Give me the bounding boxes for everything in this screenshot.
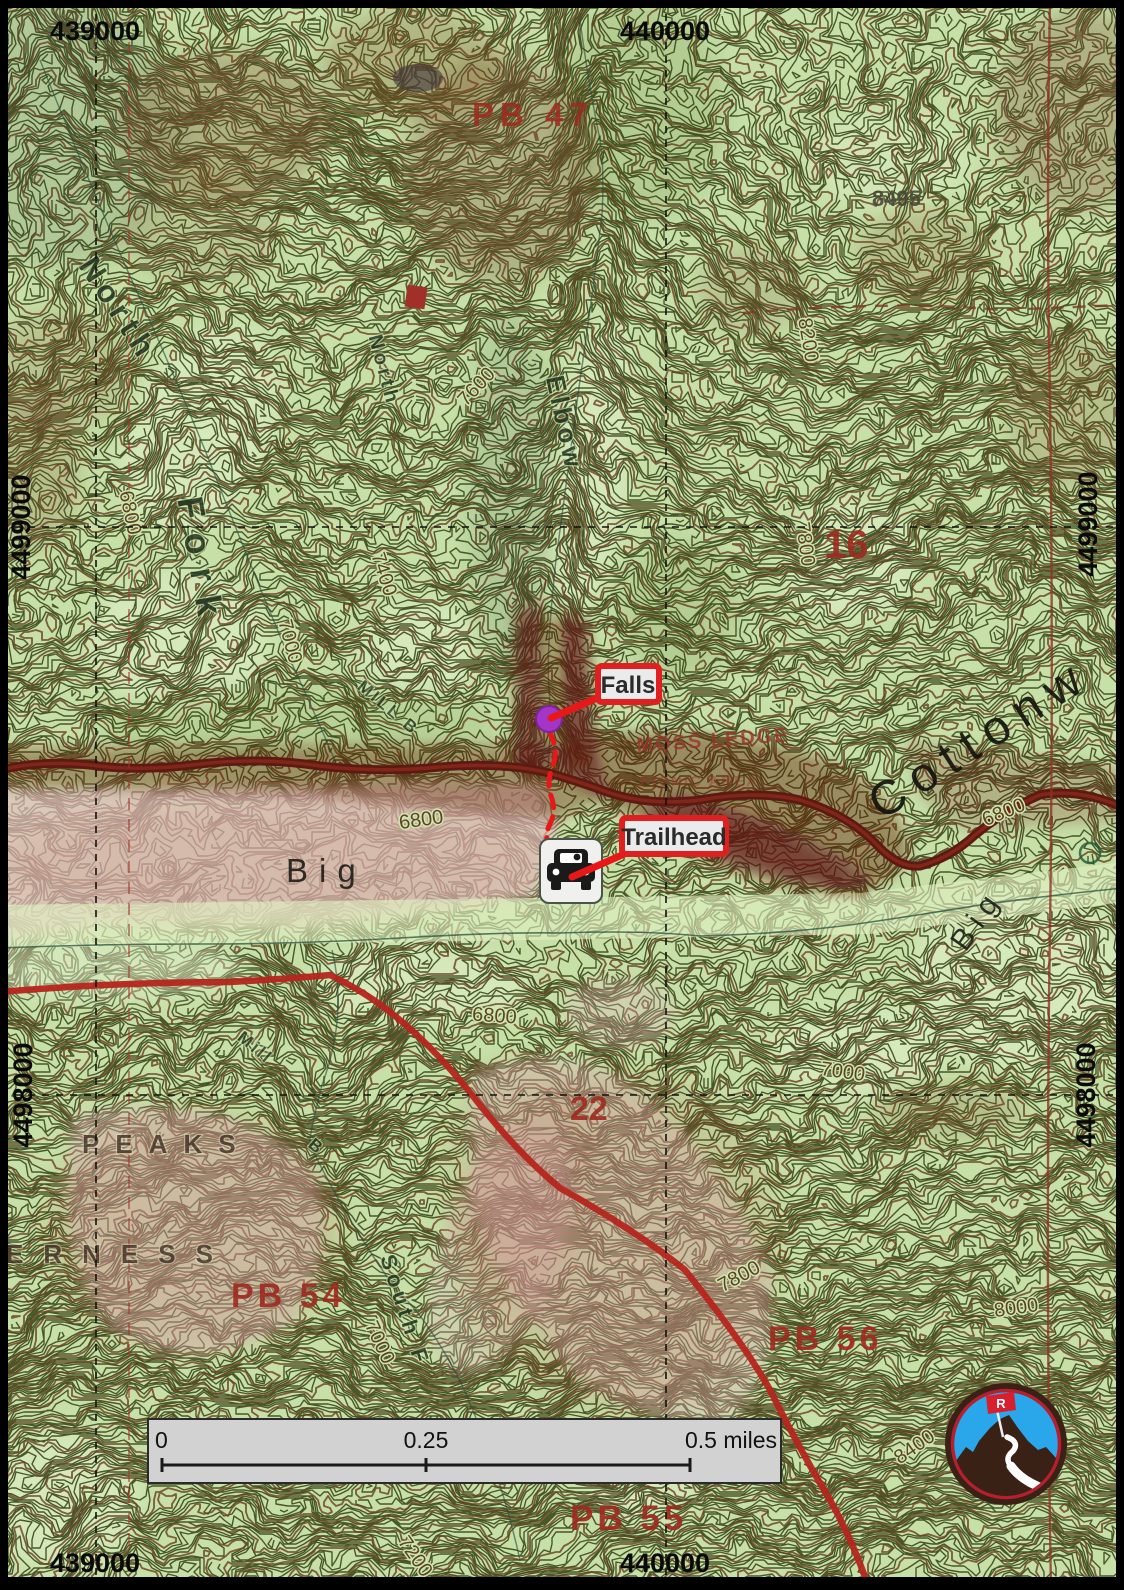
svg-text:440000: 440000	[620, 1548, 710, 1578]
svg-text:439000: 439000	[50, 1548, 140, 1578]
svg-text:8495: 8495	[872, 186, 921, 211]
svg-text:Big: Big	[286, 852, 367, 889]
svg-text:4498000: 4498000	[1071, 1042, 1101, 1147]
svg-text:4499000: 4499000	[1073, 471, 1103, 576]
svg-text:PB 55: PB 55	[570, 1499, 687, 1538]
svg-text:0.5 miles: 0.5 miles	[685, 1427, 777, 1453]
svg-text:0.25: 0.25	[404, 1427, 449, 1453]
svg-text:16: 16	[824, 523, 869, 567]
svg-text:PB 47: PB 47	[472, 96, 594, 133]
svg-text:0: 0	[155, 1427, 168, 1453]
svg-text:PICNIC AREA: PICNIC AREA	[640, 773, 759, 790]
svg-text:PB 54: PB 54	[231, 1277, 346, 1315]
svg-text:6800: 6800	[471, 1003, 517, 1028]
svg-text:4499000: 4499000	[6, 474, 36, 579]
svg-text:PEAKS: PEAKS	[82, 1129, 252, 1159]
svg-text:Falls: Falls	[601, 672, 656, 699]
svg-text:440000: 440000	[620, 16, 710, 46]
svg-text:439000: 439000	[50, 16, 140, 46]
svg-text:R: R	[996, 1396, 1006, 1411]
svg-text:Trailhead: Trailhead	[621, 824, 726, 851]
svg-text:ERNESS: ERNESS	[6, 1239, 233, 1269]
svg-text:PB 56: PB 56	[768, 1320, 883, 1358]
svg-text:4498000: 4498000	[8, 1042, 38, 1147]
